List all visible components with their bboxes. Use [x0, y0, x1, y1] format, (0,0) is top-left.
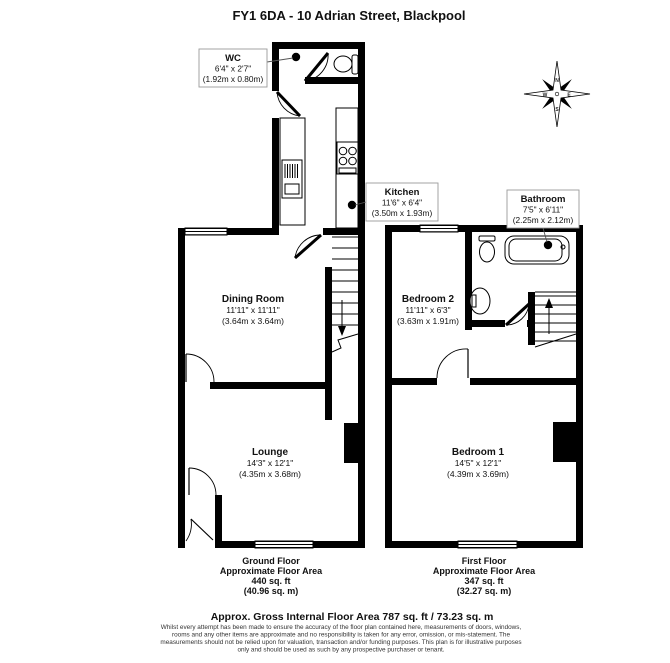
wc-leader-dot [292, 53, 300, 61]
wc-imperial: 6'4" x 2'7" [215, 64, 251, 74]
ground-caption-line4: (40.96 sq. m) [244, 586, 299, 596]
dining-window [185, 228, 227, 235]
kitchen-name: Kitchen [385, 187, 420, 198]
bathroom-toilet-icon [479, 236, 495, 262]
kitchen-imperial: 11'6" x 6'4" [382, 198, 422, 208]
wc-door [305, 53, 328, 81]
first-floor-caption: First Floor Approximate Floor Area 347 s… [433, 556, 536, 596]
gross-area-text: Approx. Gross Internal Floor Area 787 sq… [211, 611, 494, 623]
disclaimer-line-2: rooms and any other items are approximat… [172, 632, 510, 639]
dining-door [186, 354, 214, 382]
lounge-window [255, 541, 313, 548]
bedroom2-metric: (3.63m x 1.91m) [397, 316, 459, 326]
lounge-imperial: 14'3" x 12'1" [247, 458, 294, 468]
kitchen-leader-dot [348, 201, 356, 209]
bedroom1-window [458, 541, 517, 548]
disclaimer-line-1: Whilst every attempt has been made to en… [161, 624, 522, 631]
page-title: FY1 6DA - 10 Adrian Street, Blackpool [232, 8, 465, 23]
hob-icon [337, 142, 358, 174]
dining-room-label: Dining Room 11'11" x 11'11" (3.64m x 3.6… [222, 294, 284, 326]
bedroom-door [437, 349, 468, 378]
disclaimer-line-3: measurements should not be relied upon f… [160, 639, 521, 646]
first-caption-line4: (32.27 sq. m) [457, 586, 512, 596]
bathroom-label: Bathroom 7'5" x 6'11" (2.25m x 2.12m) [507, 190, 579, 228]
stairs-down-arrow-icon [338, 326, 346, 336]
wc-label: WC 6'4" x 2'7" (1.92m x 0.80m) [199, 49, 267, 87]
bathroom-leader-dot [544, 241, 552, 249]
wc-name: WC [225, 53, 241, 64]
dining-room-name: Dining Room [222, 294, 284, 305]
compass-west-label: W [543, 93, 548, 99]
bedroom2-imperial: 11'11" x 6'3" [405, 305, 450, 315]
first-caption-line3: 347 sq. ft [464, 576, 503, 586]
ground-floor-caption: Ground Floor Approximate Floor Area 440 … [220, 556, 323, 596]
first-caption-line1: First Floor [462, 556, 507, 566]
lounge-metric: (4.35m x 3.68m) [239, 469, 301, 479]
dining-room-imperial: 11'11" x 11'11" [226, 305, 280, 315]
ground-caption-line2: Approximate Floor Area [220, 566, 323, 576]
wc-toilet-icon [334, 55, 358, 74]
disclaimer-line-4: only and should be used as such by any p… [237, 647, 444, 654]
bedroom1-imperial: 14'5" x 12'1" [455, 458, 502, 468]
kitchen-label: Kitchen 11'6" x 6'4" (3.50m x 1.93m) [366, 183, 438, 221]
bathroom-imperial: 7'5" x 6'11" [523, 205, 563, 215]
washing-machine-icon [282, 160, 302, 198]
lounge-door [189, 468, 216, 495]
stairs-up-arrow-icon [545, 298, 553, 308]
first-floor-walls [385, 225, 583, 548]
lounge-label: Lounge 14'3" x 12'1" (4.35m x 3.68m) [239, 447, 301, 479]
wc-leader-line [267, 58, 293, 62]
bathtub-icon [505, 236, 569, 264]
bedroom1-name: Bedroom 1 [452, 447, 505, 458]
first-floor-plan: Bathroom 7'5" x 6'11" (2.25m x 2.12m) Be… [385, 190, 583, 596]
dining-room-metric: (3.64m x 3.64m) [222, 316, 284, 326]
ground-caption-line1: Ground Floor [242, 556, 300, 566]
floorplan-canvas: FY1 6DA - 10 Adrian Street, Blackpool N … [0, 0, 670, 663]
back-door [277, 92, 300, 116]
kitchen-metric: (3.50m x 1.93m) [372, 208, 433, 218]
front-door [186, 519, 213, 541]
sink-icon [470, 288, 490, 314]
compass-rose-icon: N W E S [524, 61, 590, 127]
bathroom-door [506, 304, 529, 325]
bathroom-metric: (2.25m x 2.12m) [513, 215, 574, 225]
lounge-name: Lounge [252, 447, 289, 458]
first-floor-stairs [535, 292, 576, 347]
bedroom2-label: Bedroom 2 11'11" x 6'3" (3.63m x 1.91m) [397, 294, 459, 326]
bedroom2-window [420, 225, 458, 232]
wc-metric: (1.92m x 0.80m) [203, 74, 264, 84]
first-caption-line2: Approximate Floor Area [433, 566, 536, 576]
footer: Approx. Gross Internal Floor Area 787 sq… [160, 611, 521, 654]
compass-north-label: N [555, 78, 559, 84]
bedroom2-name: Bedroom 2 [402, 294, 455, 305]
ground-stairs [332, 237, 358, 352]
bedroom1-label: Bedroom 1 14'5" x 12'1" (4.39m x 3.69m) [447, 447, 509, 479]
bathroom-name: Bathroom [521, 194, 566, 205]
ground-caption-line3: 440 sq. ft [251, 576, 290, 586]
kitchen-dining-door [295, 235, 321, 258]
bedroom1-metric: (4.39m x 3.69m) [447, 469, 509, 479]
